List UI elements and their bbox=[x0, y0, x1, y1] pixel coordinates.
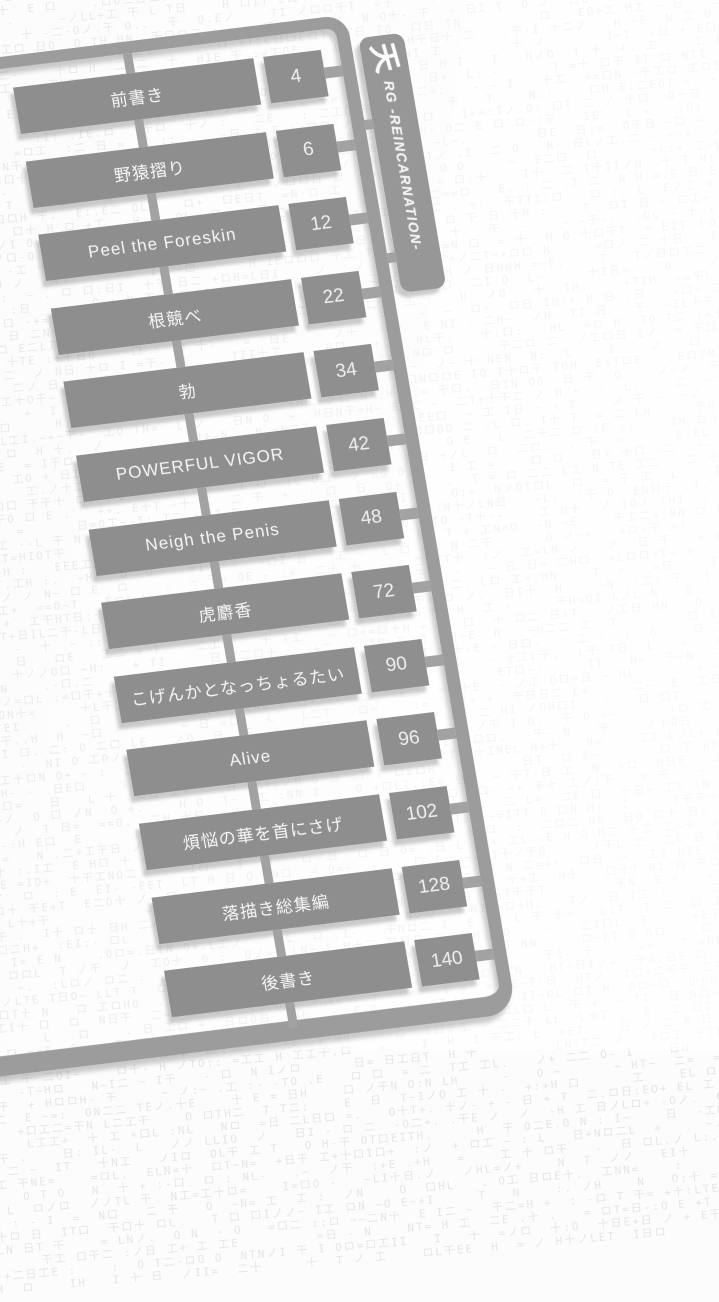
page-number-box: 90 bbox=[364, 639, 429, 692]
sprue-gate-horizontal bbox=[349, 213, 369, 226]
page-number-box: 102 bbox=[389, 786, 454, 839]
page-number: 34 bbox=[334, 359, 359, 383]
toc-bar-title: 煩悩の華を首にさげ bbox=[181, 810, 346, 854]
page-number: 12 bbox=[309, 212, 334, 236]
toc-bar-title: 勃 bbox=[176, 377, 198, 404]
page-number-box: 42 bbox=[326, 418, 391, 471]
page-number: 72 bbox=[372, 580, 397, 604]
label-gate-bottom bbox=[386, 252, 398, 263]
sprue-gate-horizontal bbox=[437, 728, 457, 741]
sprue-gate-horizontal bbox=[424, 654, 444, 667]
page-number: 96 bbox=[397, 727, 422, 751]
page-number: 22 bbox=[321, 285, 346, 309]
page-number: 4 bbox=[289, 65, 303, 88]
page-number: 48 bbox=[359, 506, 384, 530]
toc-bar-title: Peel the Foreskin bbox=[87, 224, 239, 262]
page-number-box: 140 bbox=[414, 933, 479, 986]
toc-bar-title: Alive bbox=[228, 746, 273, 771]
page-number-box: 34 bbox=[314, 344, 379, 397]
sprue-gate-horizontal bbox=[462, 875, 482, 888]
sprue-gate-horizontal bbox=[399, 507, 419, 520]
sprue-gate-horizontal bbox=[324, 65, 344, 78]
toc-bar-title: 根競べ bbox=[146, 301, 204, 332]
page-number: 42 bbox=[346, 432, 371, 456]
page-number-box: 96 bbox=[376, 712, 441, 765]
page-number: 6 bbox=[301, 139, 315, 162]
sprue-gate-horizontal bbox=[387, 433, 407, 446]
toc-bar-title: 前書き bbox=[108, 80, 166, 111]
sprue-gate-horizontal bbox=[475, 949, 495, 962]
page-number-box: 22 bbox=[301, 271, 366, 324]
label-gate-top bbox=[363, 119, 375, 130]
page-number-box: 6 bbox=[276, 123, 341, 176]
page-number-box: 12 bbox=[288, 197, 353, 250]
page-number: 140 bbox=[429, 947, 464, 973]
sprue-gate-horizontal bbox=[450, 802, 470, 815]
page-number: 102 bbox=[404, 800, 439, 826]
sprue-gate-horizontal bbox=[362, 286, 382, 299]
sprue-gate-horizontal bbox=[412, 581, 432, 594]
sprue-gate-horizontal bbox=[374, 360, 394, 373]
toc-bar-title: 虎麝香 bbox=[196, 596, 254, 627]
page-number-box: 4 bbox=[263, 50, 328, 103]
toc-bar-title: 後書き bbox=[259, 964, 317, 995]
page-number-box: 128 bbox=[402, 860, 467, 913]
toc-bar-title: 落描き総集編 bbox=[220, 887, 331, 925]
page-root: { "page": { "background_color": "#fcfcfc… bbox=[0, 0, 719, 1050]
toc-bar-title: POWERFUL VIGOR bbox=[114, 444, 285, 484]
ten-logo-icon: 天 bbox=[366, 40, 402, 75]
page-number: 90 bbox=[384, 653, 409, 677]
page-number-box: 72 bbox=[351, 565, 416, 618]
brand-series-text: RG -REINCARNATION- bbox=[381, 80, 425, 252]
toc-bar-title: Neigh the Penis bbox=[144, 520, 281, 556]
page-number: 128 bbox=[417, 874, 452, 900]
page-number-box: 48 bbox=[339, 492, 404, 545]
toc-bar-title: 野猿摺り bbox=[112, 153, 188, 186]
sprue-gate-horizontal bbox=[336, 139, 356, 152]
